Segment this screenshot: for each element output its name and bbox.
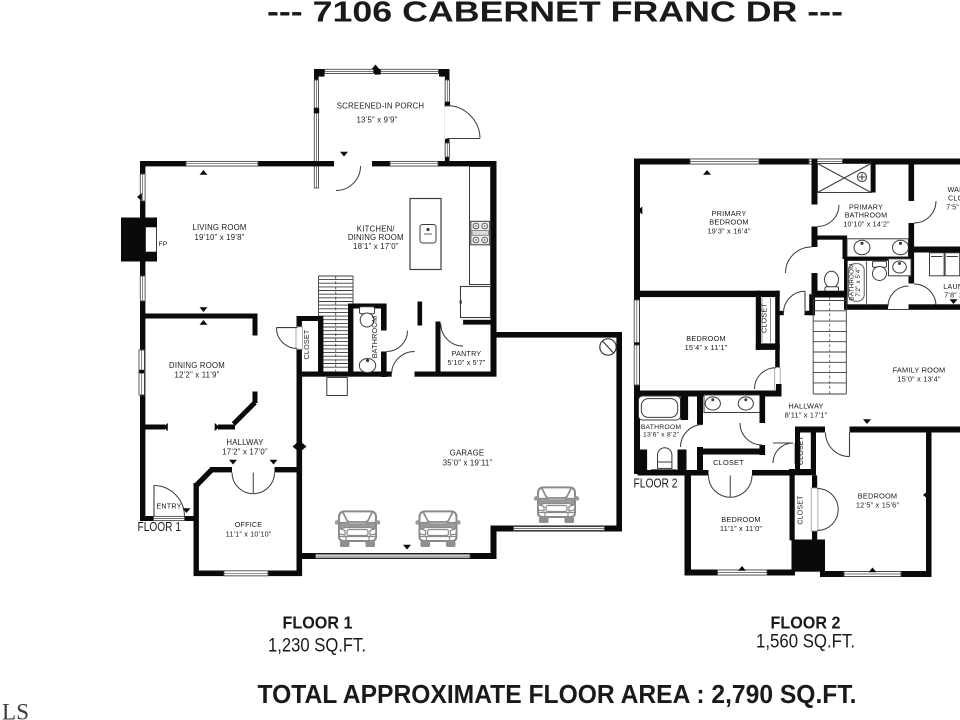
svg-text:FLOOR 2: FLOOR 2 (771, 613, 841, 633)
svg-text:12’5” x 15’6”: 12’5” x 15’6” (856, 501, 900, 510)
svg-text:FP: FP (159, 241, 168, 248)
svg-text:18’1” x 17’0”: 18’1” x 17’0” (353, 242, 399, 251)
svg-text:7’5” x 9’8”: 7’5” x 9’8” (946, 203, 960, 212)
svg-text:BATHROOM: BATHROOM (845, 211, 888, 220)
svg-text:BATHROOM: BATHROOM (370, 316, 379, 359)
svg-text:FAMILY ROOM: FAMILY ROOM (893, 366, 946, 375)
svg-text:BATHROOM: BATHROOM (641, 424, 682, 431)
svg-text:10’10” x 14’2”: 10’10” x 14’2” (843, 220, 890, 229)
svg-text:ENTRY: ENTRY (156, 502, 181, 511)
svg-text:CLOSET: CLOSET (948, 194, 960, 203)
svg-text:FLOOR 2: FLOOR 2 (634, 476, 678, 491)
svg-text:1,560 SQ.FT.: 1,560 SQ.FT. (756, 631, 855, 653)
svg-text:35’0” x 19’11”: 35’0” x 19’11” (443, 459, 493, 468)
svg-text:SCREENED-IN PORCH: SCREENED-IN PORCH (337, 102, 424, 111)
svg-text:8’11” x 17’1”: 8’11” x 17’1” (785, 411, 828, 420)
svg-text:HALLWAY: HALLWAY (226, 438, 264, 447)
svg-text:BEDROOM: BEDROOM (686, 334, 726, 343)
svg-text:19’10” x 19’8”: 19’10” x 19’8” (194, 233, 244, 242)
svg-text:CLOSET: CLOSET (713, 458, 744, 467)
svg-text:CLOSET: CLOSET (798, 435, 805, 465)
svg-text:1,230 SQ.FT.: 1,230 SQ.FT. (268, 635, 366, 657)
svg-text:15’4” x 11’1”: 15’4” x 11’1” (685, 343, 728, 352)
svg-text:DINING ROOM: DINING ROOM (348, 233, 404, 242)
svg-text:5’10” x 5’7”: 5’10” x 5’7” (448, 358, 486, 367)
svg-text:FLOOR 1: FLOOR 1 (283, 613, 353, 633)
svg-text:CLOSET: CLOSET (760, 303, 769, 333)
svg-text:13’5” x 9’9”: 13’5” x 9’9” (357, 116, 398, 125)
svg-text:11’1” x 10’10”: 11’1” x 10’10” (226, 530, 272, 539)
svg-text:17’2” x 17’0”: 17’2” x 17’0” (222, 448, 268, 457)
svg-text:11’1” x 11’0”: 11’1” x 11’0” (720, 524, 763, 533)
svg-text:BEDROOM: BEDROOM (709, 218, 749, 227)
svg-text:OFFICE: OFFICE (235, 520, 263, 529)
svg-text:FLOOR 1: FLOOR 1 (138, 519, 182, 534)
svg-text:BEDROOM: BEDROOM (721, 515, 761, 524)
svg-text:15’0” x 13’4”: 15’0” x 13’4” (897, 375, 941, 384)
svg-text:CLOSET: CLOSET (798, 495, 805, 525)
svg-text:CLOSET: CLOSET (302, 329, 311, 359)
svg-text:TOTAL APPROXIMATE FLOOR AREA :: TOTAL APPROXIMATE FLOOR AREA : 2,790 SQ.… (258, 681, 857, 709)
svg-text:7’8” x 6’2”: 7’8” x 6’2” (944, 291, 960, 300)
svg-text:13’6” x 8’2”: 13’6” x 8’2” (643, 432, 680, 439)
svg-text:LS: LS (2, 700, 29, 720)
svg-text:PANTRY: PANTRY (452, 349, 482, 358)
svg-text:19’3” x 16’4”: 19’3” x 16’4” (707, 227, 751, 236)
svg-text:LIVING ROOM: LIVING ROOM (192, 223, 246, 232)
svg-text:7’2” x 5’4”: 7’2” x 5’4” (855, 267, 862, 296)
svg-text:BEDROOM: BEDROOM (858, 492, 898, 501)
svg-text:12’2” x 11’9”: 12’2” x 11’9” (175, 371, 220, 380)
svg-text:HALLWAY: HALLWAY (788, 402, 823, 411)
svg-text:--- 7106 CABERNET FRANC DR ---: --- 7106 CABERNET FRANC DR --- (267, 0, 843, 29)
svg-text:GARAGE: GARAGE (450, 449, 485, 458)
svg-text:DINING ROOM: DINING ROOM (169, 361, 225, 370)
